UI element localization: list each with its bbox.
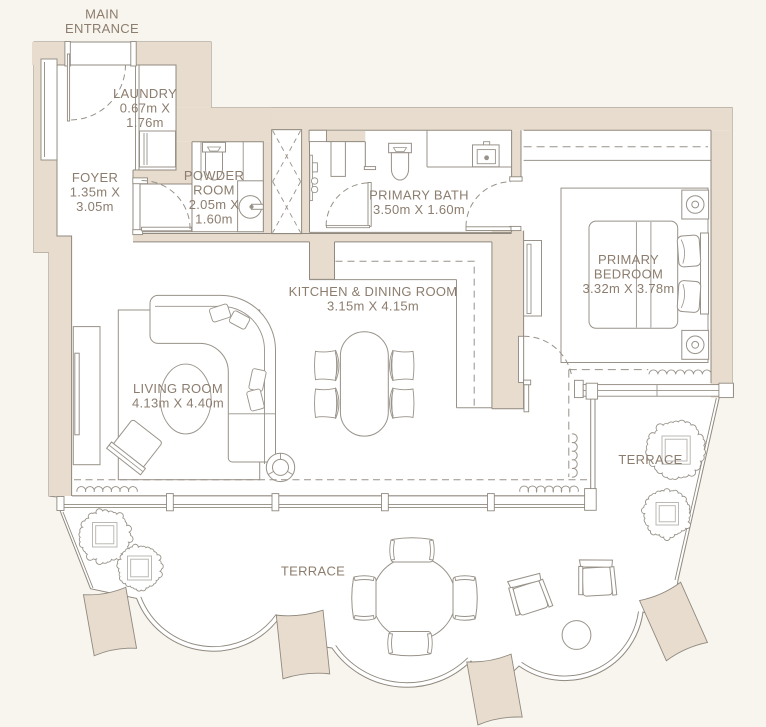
svg-text:FOYER1.35m X3.05m: FOYER1.35m X3.05m	[70, 170, 121, 214]
svg-text:PRIMARY BATH3.50m X 1.60m: PRIMARY BATH3.50m X 1.60m	[369, 188, 469, 217]
svg-text:TERRACE: TERRACE	[281, 563, 345, 578]
svg-text:TERRACE: TERRACE	[618, 452, 682, 467]
svg-text:LIVING ROOM4.13m X 4.40m: LIVING ROOM4.13m X 4.40m	[132, 381, 224, 410]
